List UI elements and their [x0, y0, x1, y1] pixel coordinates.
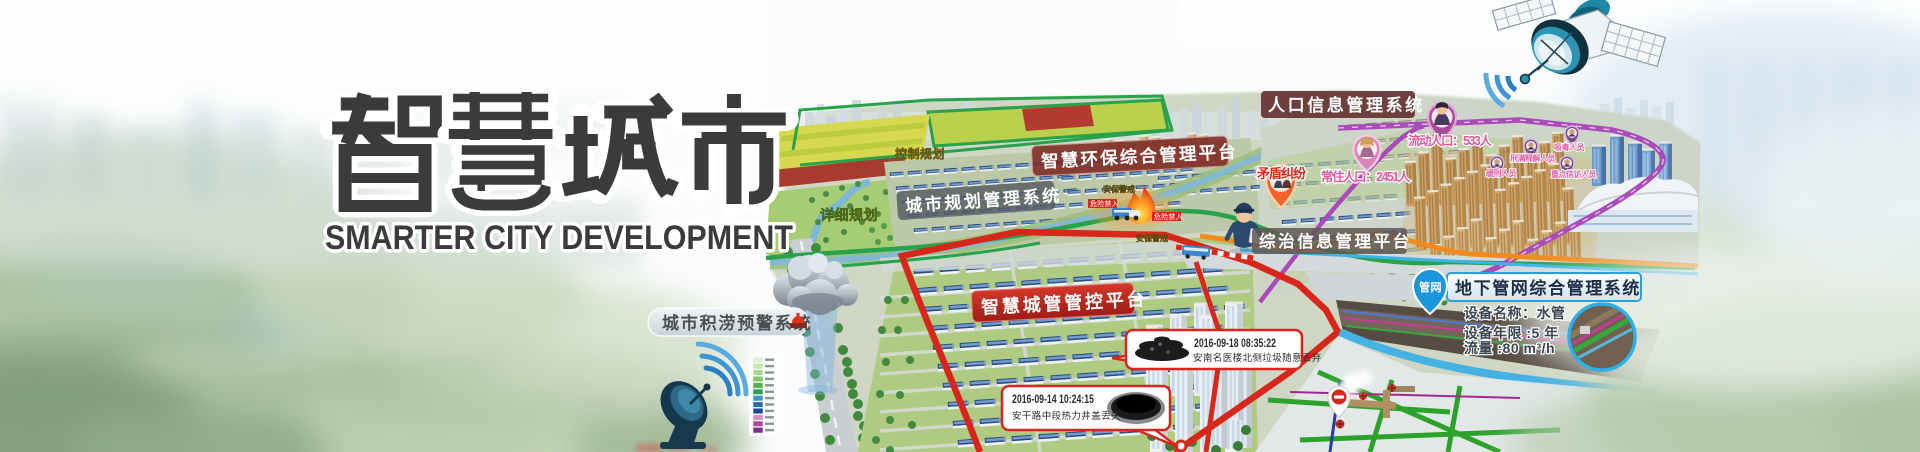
svg-text:危险禁入: 危险禁入 — [1090, 199, 1119, 208]
svg-text:设备年限 :5 年: 设备年限 :5 年 — [1464, 325, 1559, 341]
svg-text:危险禁入: 危险禁入 — [1154, 212, 1183, 221]
svg-text:流动人口：533人: 流动人口：533人 — [1408, 133, 1492, 148]
svg-text:管网: 管网 — [1419, 280, 1442, 294]
svg-text:设备名称：水管: 设备名称：水管 — [1464, 305, 1566, 321]
svg-text:矛盾纠纷: 矛盾纠纷 — [1256, 166, 1307, 181]
svg-text:人口信息管理系统: 人口信息管理系统 — [1268, 95, 1425, 115]
svg-text:详细规划: 详细规划 — [820, 207, 878, 223]
svg-text:吸毒人员: 吸毒人员 — [1554, 142, 1584, 152]
svg-text:城市积涝预警系统: 城市积涝预警系统 — [662, 313, 812, 333]
svg-text:安保警戒: 安保警戒 — [1136, 233, 1168, 243]
svg-text:综治信息管理平台: 综治信息管理平台 — [1259, 231, 1412, 251]
svg-text:控制规划: 控制规划 — [895, 146, 945, 161]
svg-text:流量 :80 m³/h: 流量 :80 m³/h — [1464, 340, 1555, 356]
svg-text:常住人口：2451人: 常住人口：2451人 — [1321, 169, 1411, 184]
svg-text:安保警戒: 安保警戒 — [1103, 184, 1135, 194]
svg-text:SMARTER CITY DEVELOPMENT: SMARTER CITY DEVELOPMENT — [325, 219, 793, 257]
svg-text:2016-09-14 10:24:15: 2016-09-14 10:24:15 — [1012, 392, 1094, 406]
svg-text:地下管网综合管理系统: 地下管网综合管理系统 — [1455, 278, 1641, 298]
svg-text:安南名医楼北侧垃圾随意丢弃: 安南名医楼北侧垃圾随意丢弃 — [1193, 352, 1322, 364]
svg-text:2016-09-18 08:35:22: 2016-09-18 08:35:22 — [1194, 336, 1276, 350]
svg-text:缓刑人员: 缓刑人员 — [1486, 168, 1516, 178]
svg-text:刑满释解人员: 刑满释解人员 — [1510, 153, 1555, 163]
svg-text:安干路中段热力井盖丢失: 安干路中段热力井盖丢失 — [1012, 410, 1121, 422]
svg-text:重点信访人员: 重点信访人员 — [1551, 169, 1596, 179]
